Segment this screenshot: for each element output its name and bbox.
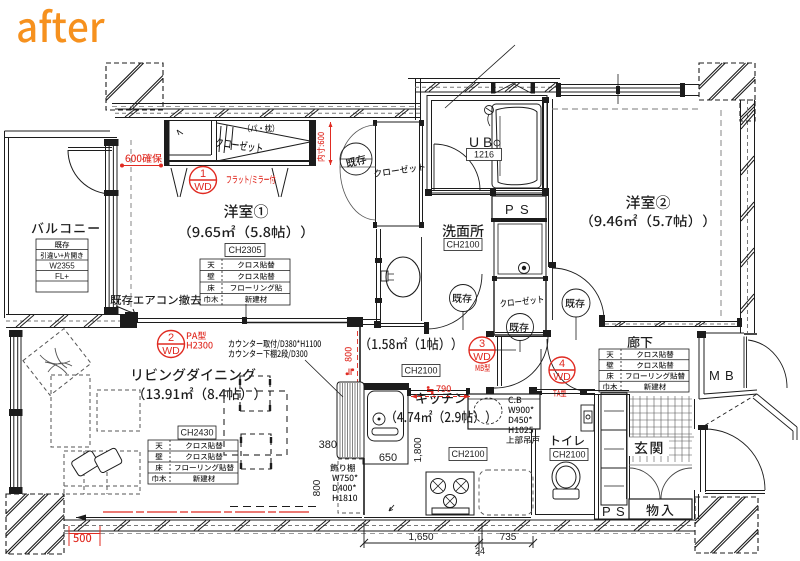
svg-text:1,650: 1,650 xyxy=(408,532,433,543)
svg-text:P: P xyxy=(505,202,514,217)
svg-text:S: S xyxy=(520,202,529,217)
svg-text:CH2430: CH2430 xyxy=(180,428,213,438)
svg-text:650: 650 xyxy=(379,452,397,464)
svg-text:P: P xyxy=(602,504,611,519)
svg-text:WD: WD xyxy=(194,181,212,193)
svg-text:FL+: FL+ xyxy=(55,272,69,281)
svg-text:M: M xyxy=(709,368,720,383)
svg-text:CH2305: CH2305 xyxy=(228,245,261,255)
svg-text:B: B xyxy=(725,368,734,383)
svg-text:CH2100: CH2100 xyxy=(446,240,479,250)
svg-text:1,800: 1,800 xyxy=(413,437,424,462)
svg-text:CH2100: CH2100 xyxy=(404,366,437,376)
svg-text:WD: WD xyxy=(473,351,491,363)
svg-text:2: 2 xyxy=(168,332,174,344)
svg-text:1216: 1216 xyxy=(474,150,494,160)
svg-text:735: 735 xyxy=(500,532,517,543)
svg-text:B: B xyxy=(483,134,492,150)
svg-text:24: 24 xyxy=(475,546,485,556)
svg-text:W2355: W2355 xyxy=(49,262,75,271)
svg-text:WD: WD xyxy=(162,345,180,357)
svg-text:3: 3 xyxy=(479,338,485,350)
svg-text:380: 380 xyxy=(319,439,337,451)
svg-text:800: 800 xyxy=(312,479,323,496)
svg-text:CH2100: CH2100 xyxy=(552,450,585,460)
svg-text:1: 1 xyxy=(200,168,206,180)
svg-text:S: S xyxy=(616,504,625,519)
svg-text:WD: WD xyxy=(553,371,571,383)
svg-text:U: U xyxy=(469,134,479,150)
svg-text:4: 4 xyxy=(559,358,565,370)
svg-text:CH2100: CH2100 xyxy=(451,449,484,459)
